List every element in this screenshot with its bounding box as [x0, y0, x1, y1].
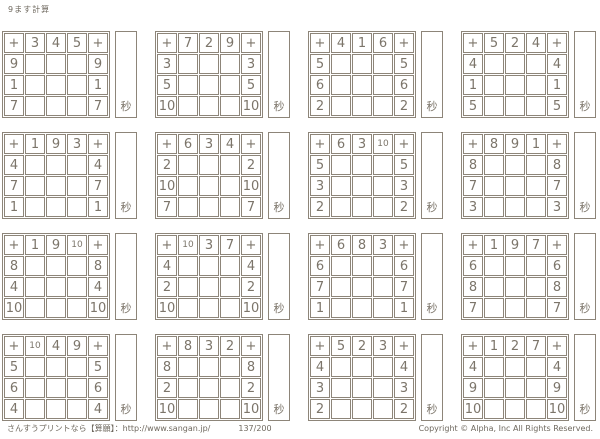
answer-cell — [199, 54, 219, 74]
row-header-cell: 2 — [241, 378, 261, 398]
seconds-label: 秒 — [427, 98, 438, 114]
answer-cell — [505, 256, 525, 276]
header-row: +193+ — [4, 134, 108, 154]
col-header-cell: 1 — [526, 134, 546, 154]
answer-cell — [352, 176, 372, 196]
puzzle-unit: +683+667711 秒 — [308, 233, 445, 320]
answer-cell — [331, 75, 351, 95]
answer-cell — [220, 75, 240, 95]
row-header-cell: 6 — [4, 378, 24, 398]
answer-cell — [526, 75, 546, 95]
header-row: +1049+ — [4, 336, 108, 356]
answer-cell — [373, 399, 393, 419]
answer-cell — [199, 256, 219, 276]
answer-cell — [526, 155, 546, 175]
col-header-cell: 1 — [25, 134, 45, 154]
col-header-cell: 5 — [484, 33, 504, 53]
answer-cell — [67, 256, 87, 276]
answer-cell — [352, 155, 372, 175]
answer-cell — [331, 155, 351, 175]
row-header-cell: 3 — [241, 54, 261, 74]
answer-cell — [331, 96, 351, 116]
answer-cell — [373, 176, 393, 196]
answer-cell — [25, 75, 45, 95]
answer-cell — [352, 75, 372, 95]
header-row: +832+ — [157, 336, 261, 356]
answer-cell — [67, 155, 87, 175]
footer-site-credit: さんすうプリントなら【算願】：http://www.sangan.jp/ — [7, 423, 238, 434]
answer-cell — [526, 176, 546, 196]
puzzle-unit: +345+991177 秒 — [2, 31, 139, 118]
row-header-cell: 8 — [157, 357, 177, 377]
row-header-cell: 7 — [394, 277, 414, 297]
row-header-cell: 4 — [4, 277, 24, 297]
answer-cell — [331, 357, 351, 377]
answer-cell — [373, 256, 393, 276]
col-header-cell: 9 — [220, 33, 240, 53]
addition-grid: +127+44991010 — [461, 334, 569, 421]
row-header-cell: 5 — [241, 75, 261, 95]
answer-cell — [373, 96, 393, 116]
answer-cell — [25, 256, 45, 276]
row-header-cell: 1 — [88, 197, 108, 217]
row-header-cell: 4 — [157, 256, 177, 276]
answer-cell — [352, 277, 372, 297]
row-header-cell: 4 — [4, 155, 24, 175]
row-header-cell: 10 — [241, 176, 261, 196]
row-header-cell: 3 — [394, 378, 414, 398]
row-header-cell: 1 — [463, 75, 483, 95]
answer-cell — [526, 277, 546, 297]
row-header-cell: 10 — [463, 399, 483, 419]
plus-operator-cell: + — [463, 33, 483, 53]
answer-cell — [25, 176, 45, 196]
plus-operator-cell: + — [310, 235, 330, 255]
puzzle-row: 1010 — [157, 96, 261, 116]
col-header-cell: 1 — [484, 336, 504, 356]
puzzle-unit: +634+22101077 秒 — [155, 132, 292, 219]
answer-cell — [46, 54, 66, 74]
puzzle-row: 66 — [4, 378, 108, 398]
puzzle-row: 77 — [4, 176, 108, 196]
seconds-label: 秒 — [427, 401, 438, 417]
answer-cell — [67, 96, 87, 116]
row-header-cell: 2 — [310, 96, 330, 116]
answer-cell — [484, 298, 504, 318]
answer-cell — [25, 277, 45, 297]
col-header-cell: 1 — [25, 235, 45, 255]
answer-cell — [484, 197, 504, 217]
answer-cell — [331, 298, 351, 318]
puzzle-row: 1010 — [157, 298, 261, 318]
row-header-cell: 1 — [547, 75, 567, 95]
answer-cell — [484, 155, 504, 175]
answer-cell — [199, 399, 219, 419]
answer-cell — [331, 399, 351, 419]
answer-cell — [178, 256, 198, 276]
col-header-cell: 2 — [505, 336, 525, 356]
seconds-label: 秒 — [274, 199, 285, 215]
plus-operator-cell: + — [547, 33, 567, 53]
header-row: +1910+ — [4, 235, 108, 255]
puzzle-row: 11 — [310, 298, 414, 318]
col-header-cell: 10 — [67, 235, 87, 255]
row-header-cell: 10 — [241, 298, 261, 318]
addition-grid: +524+441155 — [461, 31, 569, 118]
answer-cell — [505, 378, 525, 398]
row-header-cell: 3 — [157, 54, 177, 74]
header-row: +197+ — [463, 235, 567, 255]
answer-cell — [46, 298, 66, 318]
answer-cell — [220, 176, 240, 196]
seconds-box: 秒 — [115, 132, 137, 219]
row-header-cell: 5 — [88, 357, 108, 377]
row-header-cell: 2 — [241, 155, 261, 175]
seconds-label: 秒 — [121, 300, 132, 316]
row-header-cell: 7 — [88, 96, 108, 116]
puzzle-row: 88 — [463, 277, 567, 297]
plus-operator-cell: + — [547, 336, 567, 356]
header-row: +729+ — [157, 33, 261, 53]
col-header-cell: 4 — [331, 33, 351, 53]
col-header-cell: 10 — [25, 336, 45, 356]
puzzle-row: 44 — [4, 277, 108, 297]
row-header-cell: 6 — [88, 378, 108, 398]
seconds-label: 秒 — [274, 98, 285, 114]
addition-grid: +634+22101077 — [155, 132, 263, 219]
row-header-cell: 4 — [463, 357, 483, 377]
row-header-cell: 4 — [241, 256, 261, 276]
plus-operator-cell: + — [547, 235, 567, 255]
plus-operator-cell: + — [4, 33, 24, 53]
answer-cell — [67, 399, 87, 419]
puzzle-row: 77 — [4, 96, 108, 116]
row-header-cell: 2 — [157, 155, 177, 175]
col-header-cell: 6 — [178, 134, 198, 154]
col-header-cell: 9 — [46, 235, 66, 255]
addition-grid: +1037+44221010 — [155, 233, 263, 320]
plus-operator-cell: + — [4, 336, 24, 356]
puzzle-row: 1010 — [463, 399, 567, 419]
seconds-box: 秒 — [268, 31, 290, 118]
header-row: +345+ — [4, 33, 108, 53]
col-header-cell: 8 — [352, 235, 372, 255]
answer-cell — [25, 357, 45, 377]
col-header-cell: 3 — [352, 134, 372, 154]
header-row: +683+ — [310, 235, 414, 255]
plus-operator-cell: + — [241, 33, 261, 53]
answer-cell — [178, 298, 198, 318]
col-header-cell: 6 — [331, 134, 351, 154]
answer-cell — [505, 75, 525, 95]
puzzle-row: 1010 — [157, 399, 261, 419]
answer-cell — [46, 155, 66, 175]
answer-cell — [505, 54, 525, 74]
addition-grid: +683+667711 — [308, 233, 416, 320]
puzzle-row: 22 — [157, 155, 261, 175]
plus-operator-cell: + — [4, 134, 24, 154]
seconds-label: 秒 — [274, 300, 285, 316]
row-header-cell: 3 — [394, 176, 414, 196]
seconds-box: 秒 — [574, 132, 596, 219]
puzzle-unit: +193+447711 秒 — [2, 132, 139, 219]
plus-operator-cell: + — [157, 33, 177, 53]
answer-cell — [505, 399, 525, 419]
answer-cell — [178, 197, 198, 217]
answer-cell — [331, 54, 351, 74]
answer-cell — [484, 399, 504, 419]
addition-grid: +193+447711 — [2, 132, 110, 219]
answer-cell — [25, 399, 45, 419]
answer-cell — [199, 197, 219, 217]
row-header-cell: 10 — [88, 298, 108, 318]
puzzle-row: 11 — [4, 197, 108, 217]
header-row: +891+ — [463, 134, 567, 154]
answer-cell — [67, 357, 87, 377]
col-header-cell: 5 — [67, 33, 87, 53]
seconds-label: 秒 — [121, 401, 132, 417]
seconds-label: 秒 — [580, 98, 591, 114]
col-header-cell: 2 — [220, 336, 240, 356]
answer-cell — [352, 96, 372, 116]
row-header-cell: 10 — [241, 96, 261, 116]
plus-operator-cell: + — [310, 134, 330, 154]
answer-cell — [526, 298, 546, 318]
row-header-cell: 4 — [4, 399, 24, 419]
answer-cell — [505, 298, 525, 318]
row-header-cell: 10 — [241, 399, 261, 419]
puzzle-unit: +416+556622 秒 — [308, 31, 445, 118]
plus-operator-cell: + — [394, 235, 414, 255]
plus-operator-cell: + — [88, 235, 108, 255]
row-header-cell: 5 — [310, 155, 330, 175]
answer-cell — [220, 256, 240, 276]
puzzle-unit: +523+443322 秒 — [308, 334, 445, 421]
seconds-box: 秒 — [115, 233, 137, 320]
seconds-box: 秒 — [268, 334, 290, 421]
header-row: +127+ — [463, 336, 567, 356]
answer-cell — [67, 197, 87, 217]
row-header-cell: 8 — [88, 256, 108, 276]
answer-cell — [220, 378, 240, 398]
puzzle-row: 11 — [4, 75, 108, 95]
header-row: +6310+ — [310, 134, 414, 154]
answer-cell — [46, 75, 66, 95]
puzzle-row: 88 — [157, 357, 261, 377]
row-header-cell: 9 — [547, 378, 567, 398]
answer-cell — [46, 378, 66, 398]
plus-operator-cell: + — [88, 336, 108, 356]
col-header-cell: 4 — [46, 33, 66, 53]
row-header-cell: 8 — [463, 155, 483, 175]
row-header-cell: 2 — [157, 378, 177, 398]
row-header-cell: 6 — [394, 75, 414, 95]
answer-cell — [46, 197, 66, 217]
puzzle-row: 22 — [157, 378, 261, 398]
row-header-cell: 2 — [310, 399, 330, 419]
answer-cell — [199, 75, 219, 95]
answer-cell — [25, 378, 45, 398]
row-header-cell: 7 — [88, 176, 108, 196]
row-header-cell: 5 — [394, 54, 414, 74]
answer-cell — [484, 378, 504, 398]
answer-cell — [526, 54, 546, 74]
answer-cell — [331, 197, 351, 217]
row-header-cell: 10 — [157, 298, 177, 318]
row-header-cell: 1 — [310, 298, 330, 318]
col-header-cell: 4 — [220, 134, 240, 154]
puzzle-unit: +1910+88441010 秒 — [2, 233, 139, 320]
answer-cell — [526, 357, 546, 377]
row-header-cell: 4 — [310, 357, 330, 377]
footer-page-number: 137/200 — [238, 424, 361, 433]
puzzle-row: 99 — [4, 54, 108, 74]
answer-cell — [352, 298, 372, 318]
plus-operator-cell: + — [463, 336, 483, 356]
puzzle-row: 55 — [4, 357, 108, 377]
seconds-box: 秒 — [421, 132, 443, 219]
plus-operator-cell: + — [4, 235, 24, 255]
answer-cell — [178, 54, 198, 74]
header-row: +1037+ — [157, 235, 261, 255]
puzzle-row: 99 — [463, 378, 567, 398]
addition-grid: +345+991177 — [2, 31, 110, 118]
answer-cell — [178, 399, 198, 419]
row-header-cell: 3 — [463, 197, 483, 217]
answer-cell — [484, 96, 504, 116]
answer-cell — [178, 378, 198, 398]
puzzle-row: 44 — [463, 54, 567, 74]
plus-operator-cell: + — [463, 235, 483, 255]
row-header-cell: 5 — [4, 357, 24, 377]
row-header-cell: 4 — [88, 155, 108, 175]
worksheet-page: 9ます計算 +345+991177 秒 +729+33551010 秒 +416… — [0, 0, 600, 439]
answer-cell — [373, 54, 393, 74]
answer-cell — [178, 155, 198, 175]
puzzle-row: 44 — [4, 155, 108, 175]
col-header-cell: 7 — [178, 33, 198, 53]
col-header-cell: 6 — [331, 235, 351, 255]
answer-cell — [484, 256, 504, 276]
puzzle-row: 66 — [310, 256, 414, 276]
col-header-cell: 9 — [67, 336, 87, 356]
answer-cell — [505, 96, 525, 116]
answer-cell — [25, 54, 45, 74]
answer-cell — [373, 197, 393, 217]
answer-cell — [220, 155, 240, 175]
answer-cell — [67, 176, 87, 196]
row-header-cell: 3 — [310, 378, 330, 398]
col-header-cell: 7 — [526, 235, 546, 255]
puzzle-unit: +729+33551010 秒 — [155, 31, 292, 118]
plus-operator-cell: + — [241, 235, 261, 255]
col-header-cell: 4 — [526, 33, 546, 53]
answer-cell — [373, 277, 393, 297]
answer-cell — [352, 54, 372, 74]
answer-cell — [505, 176, 525, 196]
answer-cell — [484, 54, 504, 74]
row-header-cell: 2 — [394, 197, 414, 217]
row-header-cell: 6 — [463, 256, 483, 276]
row-header-cell: 4 — [88, 399, 108, 419]
addition-grid: +6310+553322 — [308, 132, 416, 219]
row-header-cell: 1 — [88, 75, 108, 95]
addition-grid: +832+88221010 — [155, 334, 263, 421]
puzzle-row: 44 — [463, 357, 567, 377]
seconds-box: 秒 — [421, 31, 443, 118]
row-header-cell: 6 — [310, 256, 330, 276]
answer-cell — [220, 357, 240, 377]
row-header-cell: 7 — [463, 298, 483, 318]
row-header-cell: 2 — [394, 96, 414, 116]
row-header-cell: 5 — [547, 96, 567, 116]
puzzle-unit: +1037+44221010 秒 — [155, 233, 292, 320]
header-row: +524+ — [463, 33, 567, 53]
row-header-cell: 7 — [4, 176, 24, 196]
answer-cell — [526, 96, 546, 116]
answer-cell — [67, 378, 87, 398]
puzzle-row: 77 — [463, 298, 567, 318]
answer-cell — [199, 277, 219, 297]
answer-cell — [67, 298, 87, 318]
seconds-box: 秒 — [115, 31, 137, 118]
header-row: +416+ — [310, 33, 414, 53]
seconds-box: 秒 — [268, 233, 290, 320]
row-header-cell: 8 — [547, 155, 567, 175]
puzzle-row: 77 — [157, 197, 261, 217]
row-header-cell: 10 — [157, 176, 177, 196]
answer-cell — [178, 357, 198, 377]
row-header-cell: 7 — [157, 197, 177, 217]
row-header-cell: 10 — [4, 298, 24, 318]
answer-cell — [46, 357, 66, 377]
puzzle-row: 1010 — [4, 298, 108, 318]
row-header-cell: 8 — [4, 256, 24, 276]
col-header-cell: 3 — [199, 235, 219, 255]
row-header-cell: 2 — [310, 197, 330, 217]
answer-cell — [331, 378, 351, 398]
header-row: +523+ — [310, 336, 414, 356]
puzzle-row: 44 — [4, 399, 108, 419]
answer-cell — [46, 96, 66, 116]
col-header-cell: 2 — [352, 336, 372, 356]
page-title: 9ます計算 — [8, 4, 50, 15]
plus-operator-cell: + — [241, 336, 261, 356]
row-header-cell: 7 — [310, 277, 330, 297]
col-header-cell: 9 — [46, 134, 66, 154]
row-header-cell: 9 — [463, 378, 483, 398]
answer-cell — [373, 155, 393, 175]
answer-cell — [199, 298, 219, 318]
plus-operator-cell: + — [88, 134, 108, 154]
plus-operator-cell: + — [241, 134, 261, 154]
col-header-cell: 9 — [505, 134, 525, 154]
row-header-cell: 10 — [547, 399, 567, 419]
seconds-label: 秒 — [580, 199, 591, 215]
col-header-cell: 7 — [220, 235, 240, 255]
row-header-cell: 6 — [394, 256, 414, 276]
puzzle-grid-area: +345+991177 秒 +729+33551010 秒 +416+55662… — [2, 31, 598, 421]
answer-cell — [25, 298, 45, 318]
answer-cell — [25, 197, 45, 217]
plus-operator-cell: + — [88, 33, 108, 53]
answer-cell — [220, 54, 240, 74]
col-header-cell: 1 — [484, 235, 504, 255]
answer-cell — [46, 256, 66, 276]
row-header-cell: 5 — [157, 75, 177, 95]
col-header-cell: 6 — [373, 33, 393, 53]
addition-grid: +1049+556644 — [2, 334, 110, 421]
